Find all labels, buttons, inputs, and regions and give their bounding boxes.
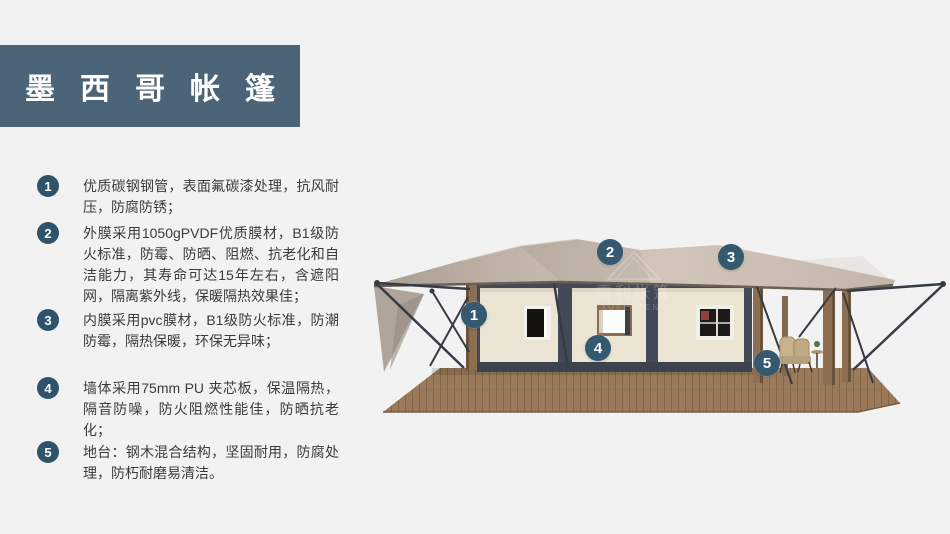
deck-platform (383, 368, 900, 412)
feature-item-3: 3 内膜采用pvc膜材，B1级防火标准，防潮防霉，隔热保暖，环保无异味； (37, 310, 357, 352)
feature-number-badge: 5 (37, 441, 59, 463)
watermark-en: XUELI TENT (601, 303, 667, 312)
feature-item-4: 4 墙体采用75mm PU 夹芯板，保温隔热，隔音防噪，防火阻燃性能佳，防晒抗老… (37, 378, 357, 441)
window-1 (524, 306, 551, 340)
feature-text: 外膜采用1050gPVDF优质膜材，B1级防火标准，防霉、防晒、阻燃、抗老化和自… (83, 223, 339, 307)
feature-text: 地台：钢木混合结构，坚固耐用，防腐处理，防朽耐磨易清洁。 (83, 442, 339, 484)
feature-item-5: 5 地台：钢木混合结构，坚固耐用，防腐处理，防朽耐磨易清洁。 (37, 442, 357, 484)
watermark-cn: 雪利帐篷 (596, 283, 672, 302)
callout-5: 5 (754, 350, 780, 376)
window-3 (696, 305, 734, 340)
roof-left-wing (374, 286, 424, 372)
feature-text: 内膜采用pvc膜材，B1级防火标准，防潮防霉，隔热保暖，环保无异味； (83, 310, 339, 352)
feature-item-2: 2 外膜采用1050gPVDF优质膜材，B1级防火标准，防霉、防晒、阻燃、抗老化… (37, 223, 357, 307)
feature-number-badge: 1 (37, 175, 59, 197)
tent-render-svg: 雪利帐篷 XUELI TENT (350, 210, 950, 425)
tent-illustration: 雪利帐篷 XUELI TENT 1 2 3 4 5 (350, 210, 950, 425)
feature-number-badge: 2 (37, 222, 59, 244)
feature-text: 墙体采用75mm PU 夹芯板，保温隔热，隔音防噪，防火阻燃性能佳，防晒抗老化； (83, 378, 339, 441)
feature-item-1: 1 优质碳钢钢管，表面氟碳漆处理，抗风耐压，防腐防锈； (37, 176, 357, 218)
feature-text: 优质碳钢钢管，表面氟碳漆处理，抗风耐压，防腐防锈； (83, 176, 339, 218)
callout-4: 4 (585, 335, 611, 361)
callout-2: 2 (597, 239, 623, 265)
page-title: 墨西哥帐篷 (0, 64, 300, 108)
feature-number-badge: 4 (37, 377, 59, 399)
callout-3: 3 (718, 244, 744, 270)
title-banner: 墨西哥帐篷 (0, 45, 300, 127)
callout-1: 1 (461, 302, 487, 328)
tent-roof (374, 239, 895, 290)
slide: 墨西哥帐篷 1 优质碳钢钢管，表面氟碳漆处理，抗风耐压，防腐防锈； 2 外膜采用… (0, 0, 950, 534)
feature-number-badge: 3 (37, 309, 59, 331)
